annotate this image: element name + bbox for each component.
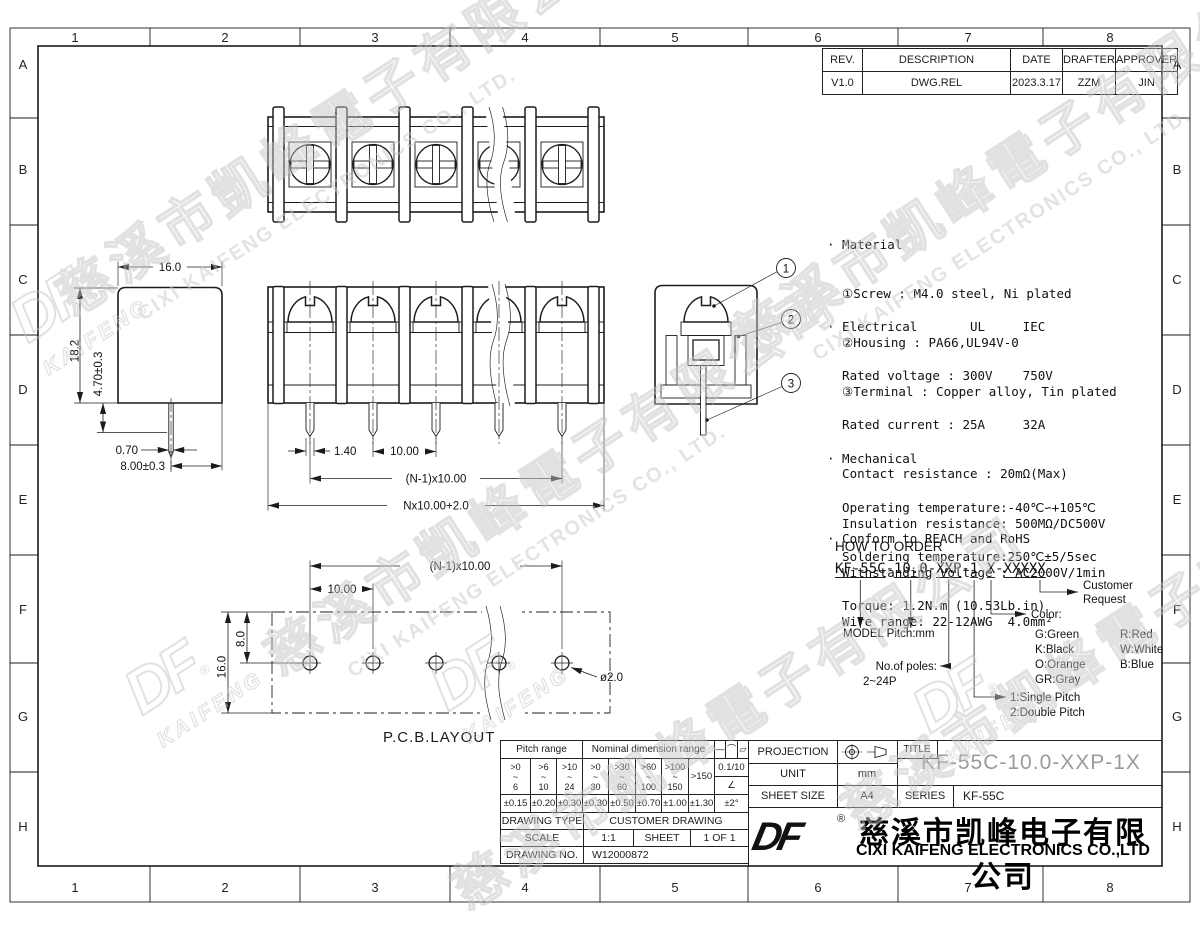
rev-header: DESCRIPTION xyxy=(863,49,1011,72)
dim-v16: 16.0 xyxy=(216,656,228,678)
section-pin xyxy=(701,366,707,436)
drawing-no-label: DRAWING NO. xyxy=(501,847,584,864)
side-dimensions: 16.0 18.2 4.70±0.3 0.70 8.00±0.3 xyxy=(67,261,223,473)
rev-value: DWG.REL xyxy=(863,72,1011,95)
order-poles-label: No.of poles: xyxy=(876,661,937,673)
dim-span: (N-1)x10.00 xyxy=(430,561,491,573)
tol-range: >10~24 xyxy=(557,762,582,792)
rev-header: REV. xyxy=(823,49,863,72)
projection-label: PROJECTION xyxy=(749,741,837,763)
tol-range: >6~10 xyxy=(531,762,556,792)
angle-symbol: ∠ xyxy=(715,777,748,794)
scale-value: 1:1 xyxy=(584,830,634,847)
drawing-type-label: DRAWING TYPE xyxy=(501,813,584,830)
balloon-2: 2 xyxy=(788,314,794,326)
tol-symbols: — ⌒ ▱ xyxy=(715,741,748,758)
tol-value: ±1.00 xyxy=(662,795,689,813)
drawing-type-value: CUSTOMER DRAWING xyxy=(584,813,749,830)
conform-note: · Conform to REACH and RoHS xyxy=(827,498,1030,564)
side-view: 16.0 18.2 4.70±0.3 0.70 8.00±0.3 xyxy=(67,261,223,473)
order-poles-range: 2~24P xyxy=(863,676,897,688)
order-color-option: B:Blue xyxy=(1120,659,1154,671)
order-pitch-single: 1:Single Pitch xyxy=(1010,692,1080,704)
rev-value: V1.0 xyxy=(823,72,863,95)
drawing-title: KF-55C-10.0-XXP-1X xyxy=(901,743,1161,783)
note-line: · Material xyxy=(827,237,1117,253)
pcb-layout: (N-1)x10.00 10.00 16.0 8.0 ø2.0 xyxy=(214,560,624,721)
straightness-symbol: — xyxy=(715,741,726,758)
revision-table: REV. DESCRIPTION DATE DRAFTER APPROVER V… xyxy=(822,48,1178,95)
dim-body-height: 18.2 xyxy=(69,340,81,362)
scale-label: SCALE xyxy=(501,830,584,847)
dim-pin-length: 4.70±0.3 xyxy=(93,352,105,397)
housing-wall-hatch xyxy=(735,336,746,386)
title-block: PROJECTION TITLE KF-55C-10.0-XXP-1X UNIT… xyxy=(748,740,1162,866)
order-color-option: O:Orange xyxy=(1035,659,1086,671)
pcb-layout-label: P.C.B.LAYOUT xyxy=(383,729,495,746)
tol-value: ±0.20 xyxy=(531,795,557,813)
tolerance-table: Pitch range Nominal dimension range — ⌒ … xyxy=(500,740,749,813)
sheet-value: 1 OF 1 xyxy=(691,830,749,847)
tol-ratio: 0.1/10 xyxy=(715,759,748,777)
dim-pitch: 10.00 xyxy=(328,584,357,596)
tol-value: ±0.50 xyxy=(609,795,636,813)
section-view: 1 2 3 xyxy=(655,259,801,436)
housing-wall-hatch xyxy=(666,336,677,386)
tol-value: ±0.15 xyxy=(501,795,531,813)
tol-range: >100~150 xyxy=(662,762,688,792)
tol-nominal-header: Nominal dimension range xyxy=(583,741,715,759)
tol-range: >60~100 xyxy=(636,762,661,792)
dim-pin-width: 1.40 xyxy=(334,446,356,458)
sheet-size-label: SHEET SIZE xyxy=(749,785,837,807)
order-pitch-double: 2:Double Pitch xyxy=(1010,707,1085,719)
section-screw xyxy=(684,297,728,322)
unit-value: mm xyxy=(837,763,897,785)
order-color-option: R:Red xyxy=(1120,629,1153,641)
note-line: Torque: 1.2N.m (10.53Lb.in) xyxy=(827,598,1097,614)
drawing-no-value: W12000872 xyxy=(584,847,749,864)
rev-value: JIN xyxy=(1115,72,1177,95)
rev-header: APPROVER xyxy=(1115,49,1177,72)
top-view xyxy=(268,107,604,222)
rev-value: ZZM xyxy=(1063,72,1116,95)
dim-pitch: 10.00 xyxy=(390,446,419,458)
order-color-option: GR:Gray xyxy=(1035,674,1081,686)
tol-value: ±1.30 xyxy=(689,795,715,813)
pcb-holes xyxy=(299,652,573,674)
rev-header: DRAFTER xyxy=(1063,49,1116,72)
rev-header: DATE xyxy=(1011,49,1063,72)
centerlines xyxy=(310,281,562,444)
screw-pockets xyxy=(289,142,583,187)
dim-span: (N-1)x10.00 xyxy=(406,474,467,486)
tol-ratio-angle: 0.1/10 ∠ xyxy=(715,759,748,794)
rev-value: 2023.3.17 xyxy=(1011,72,1063,95)
tol-pitch-header: Pitch range xyxy=(501,741,583,759)
cad-sheet: { "grid": {"cols": ["1","2","3","4","5",… xyxy=(0,0,1200,910)
unit-label: UNIT xyxy=(749,763,837,785)
dim-pin-width: 0.70 xyxy=(116,445,138,457)
note-line: · Conform to REACH and RoHS xyxy=(827,531,1030,547)
company-logo: DF xyxy=(748,815,803,860)
registered-mark: ® xyxy=(837,813,845,825)
tol-range: >0~30 xyxy=(583,762,608,792)
dim-hole-dia: ø2.0 xyxy=(600,672,623,684)
tol-angle-value: ±2° xyxy=(715,795,749,813)
sheet-label: SHEET xyxy=(634,830,691,847)
arc-symbol: ⌒ xyxy=(726,741,737,758)
balloon-1: 1 xyxy=(783,263,789,275)
front-view: 1.40 10.00 (N-1)x10.00 Nx10.00+2.0 xyxy=(268,281,604,513)
projection-symbol xyxy=(837,741,897,763)
tol-range: >0~6 xyxy=(501,762,530,792)
dim-body-width: 16.0 xyxy=(159,262,181,274)
tol-range-last: >150 xyxy=(689,759,715,795)
dim-v8: 8.0 xyxy=(235,631,247,647)
note-line: · Mechanical xyxy=(827,451,1097,467)
drawing-info-table: DRAWING TYPE CUSTOMER DRAWING SCALE 1:1 … xyxy=(500,812,749,864)
tol-value: ±0.30 xyxy=(557,795,583,813)
dim-total: Nx10.00+2.0 xyxy=(403,501,469,513)
series-value: KF-55C xyxy=(953,785,1173,807)
series-label: SERIES xyxy=(897,785,953,807)
order-color-option: W:White xyxy=(1120,644,1163,656)
dim-pin-offset: 8.00±0.3 xyxy=(120,461,165,473)
note-line: · Electrical UL IEC xyxy=(827,319,1105,335)
company-name-en: CIXI KAIFENG ELECTRONICS CO.,LTD xyxy=(845,842,1161,860)
tol-value: ±0.30 xyxy=(583,795,609,813)
pcb-dimensions: (N-1)x10.00 10.00 16.0 8.0 ø2.0 xyxy=(214,560,624,714)
flatness-symbol: ▱ xyxy=(738,741,748,758)
balloon-3: 3 xyxy=(788,378,794,390)
tol-value: ±0.70 xyxy=(636,795,662,813)
sheet-size-value: A4 xyxy=(837,785,897,807)
tol-range: >30~60 xyxy=(609,762,635,792)
note-line: Rated voltage : 300V 750V xyxy=(827,368,1105,384)
